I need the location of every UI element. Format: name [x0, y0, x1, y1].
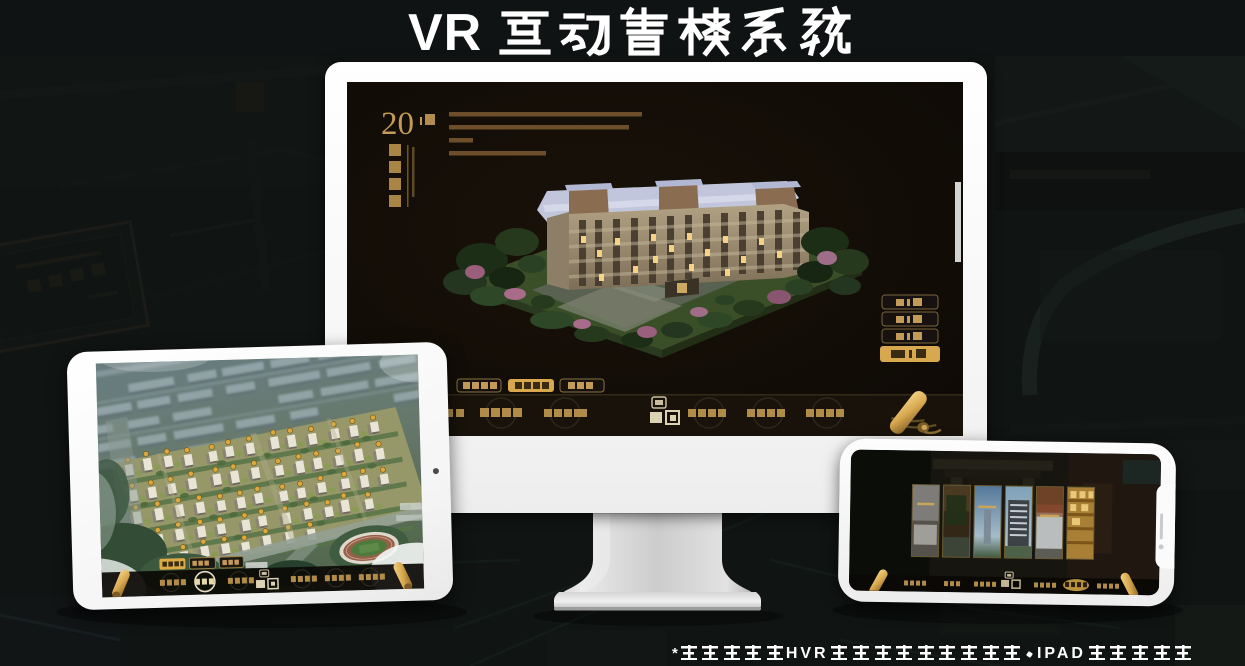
svg-text:20: 20: [381, 106, 414, 142]
svg-text:VR: VR: [408, 5, 482, 57]
